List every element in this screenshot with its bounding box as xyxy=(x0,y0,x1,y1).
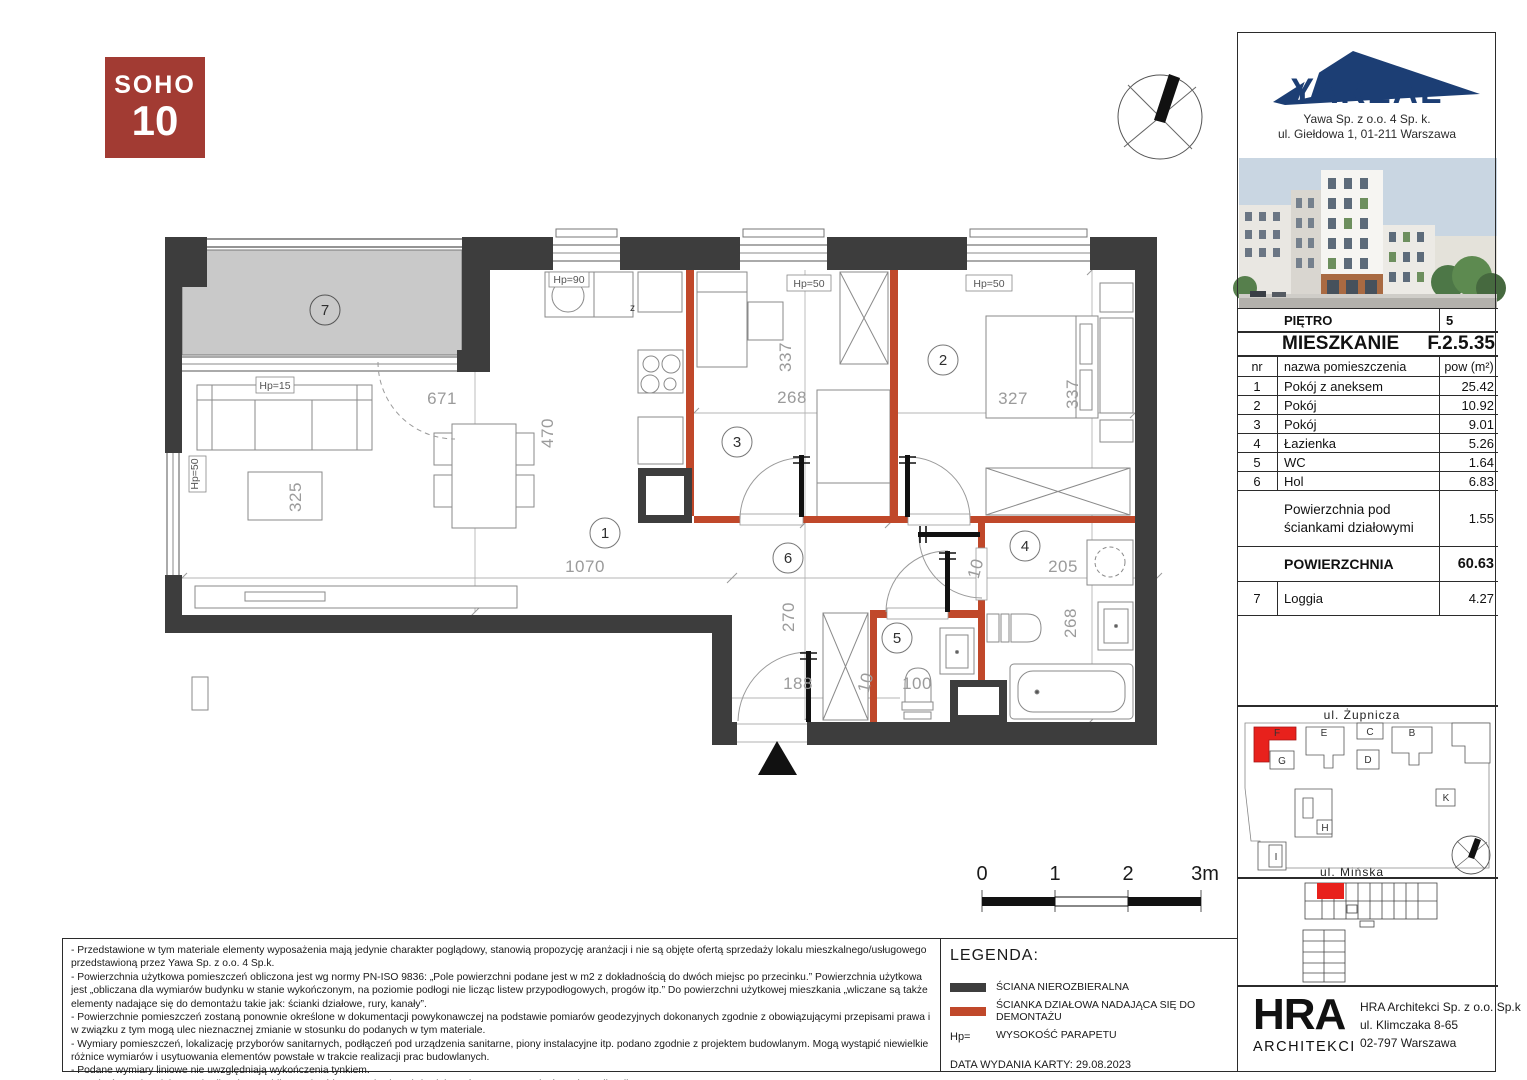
dim-327: 327 xyxy=(998,389,1028,408)
unit-number: F.2.5.35 xyxy=(1427,333,1498,355)
table-header-row: nr nazwa pomieszczenia pow (m²) xyxy=(1237,355,1498,376)
partition-area-row: Powierzchnia pod ściankami działowymi 1.… xyxy=(1237,490,1498,546)
partition-area-value: 1.55 xyxy=(1439,491,1498,546)
dim-325: 325 xyxy=(286,482,305,512)
developer-company: Yawa Sp. z o.o. 4 Sp. k. xyxy=(1243,112,1491,127)
table-row: 3 Pokój 9.01 xyxy=(1237,414,1498,433)
room-nr: 3 xyxy=(1237,415,1278,433)
hra-logo: HRA ARCHITEKCI xyxy=(1253,995,1356,1055)
scale-0: 0 xyxy=(976,863,987,885)
room-name: Loggia xyxy=(1278,591,1439,606)
room-nr: 5 xyxy=(1237,453,1278,471)
dim-205: 205 xyxy=(1048,557,1078,576)
yareal-wordmark: YAREAL xyxy=(1243,72,1491,112)
room3-bed2 xyxy=(817,390,890,517)
hp-label-50-room2: Hp=50 xyxy=(973,278,1004,290)
room-name: Pokój xyxy=(1278,398,1439,413)
left-window xyxy=(165,453,182,575)
hra-company: HRA Architekci Sp. z o.o. Sp.k xyxy=(1360,998,1521,1016)
dim-337-room3: 337 xyxy=(776,342,795,372)
table-row: 1 Pokój z aneksem 25.42 xyxy=(1237,376,1498,395)
outside-column xyxy=(192,677,208,710)
table-row: 4 Łazienka 5.26 xyxy=(1237,433,1498,452)
washing-machine xyxy=(1087,540,1133,585)
room-marker-4: 4 xyxy=(1010,531,1040,561)
scale-2: 2 xyxy=(1122,863,1133,885)
room-nr: 4 xyxy=(1237,434,1278,452)
dim-470: 470 xyxy=(538,418,557,448)
hall-wardrobe xyxy=(823,613,868,720)
room-area: 25.42 xyxy=(1439,377,1498,395)
dim-100: 100 xyxy=(902,674,932,693)
legend-item-hp: Hp= WYSOKOŚĆ PARAPETU xyxy=(950,1029,1227,1041)
kitchen-z-label: z xyxy=(630,303,635,314)
legend-item-partition: ŚCIANKA DZIAŁOWA NADAJĄCA SIĘ DO DEMONTA… xyxy=(950,999,1227,1023)
room-area: 6.83 xyxy=(1439,472,1498,490)
room-area: 1.64 xyxy=(1439,453,1498,471)
soho10-logo: SOHO 10 xyxy=(105,57,205,158)
table-row: 6 Hol 6.83 xyxy=(1237,471,1498,490)
soho-logo-text: SOHO xyxy=(114,73,196,98)
room-name: WC xyxy=(1278,455,1439,470)
legend-wall-label: ŚCIANA NIEROZBIERALNA xyxy=(996,981,1129,993)
divider xyxy=(1237,985,1498,987)
floor-label: PIĘTRO xyxy=(1278,313,1439,328)
disclaimer-line: - Wymiary pomieszczeń, lokalizację przyb… xyxy=(71,1038,932,1065)
soho-logo-number: 10 xyxy=(132,100,179,142)
room-area: 5.26 xyxy=(1439,434,1498,452)
loggia-row: 7 Loggia 4.27 xyxy=(1237,581,1498,616)
room3-wardrobe xyxy=(840,272,888,364)
bathroom-sink xyxy=(1098,602,1133,650)
room2-window xyxy=(967,229,1090,270)
unit-label: MIESZKANIE xyxy=(1237,333,1427,355)
hra-street: ul. Klimczaka 8-65 xyxy=(1360,1016,1521,1034)
disclaimer-line: - Powierzchnia użytkowa pomieszczeń obli… xyxy=(71,971,932,1011)
coffee-table xyxy=(248,472,322,520)
bathtub xyxy=(1010,664,1133,719)
developer-street: ul. Giełdowa 1, 01-211 Warszawa xyxy=(1243,127,1491,142)
divider xyxy=(1237,705,1498,707)
dim-268-bath: 268 xyxy=(1061,608,1080,638)
dim-188: 188 xyxy=(783,674,813,693)
room-number-2: 2 xyxy=(939,352,947,369)
room-nr: 7 xyxy=(1237,582,1278,615)
room-name: Pokój z aneksem xyxy=(1278,379,1439,394)
dim-270: 270 xyxy=(779,602,798,632)
room-number-5: 5 xyxy=(893,630,901,647)
hra-city: 02-797 Warszawa xyxy=(1360,1034,1521,1052)
total-area-row: POWIERZCHNIA 60.63 xyxy=(1237,546,1498,581)
developer-address: Yawa Sp. z o.o. 4 Sp. k. ul. Giełdowa 1,… xyxy=(1243,112,1491,142)
col-header-name: nazwa pomieszczenia xyxy=(1278,360,1439,374)
room-number-7: 7 xyxy=(321,302,329,319)
room-area: 9.01 xyxy=(1439,415,1498,433)
scale-3m: 3m xyxy=(1191,863,1219,885)
total-area-label: POWIERZCHNIA xyxy=(1278,556,1439,572)
total-area-value: 60.63 xyxy=(1439,547,1498,581)
hra-address: HRA Architekci Sp. z o.o. Sp.k ul. Klimc… xyxy=(1360,998,1521,1052)
hp-prefix: Hp= xyxy=(950,1031,986,1040)
room-marker-5: 5 xyxy=(882,623,912,653)
room-name: Łazienka xyxy=(1278,436,1439,451)
scale-1: 1 xyxy=(1049,863,1060,885)
disclaimer-line: - Podane wymiary liniowe nie uwzględniaj… xyxy=(71,1064,932,1077)
legend-box: LEGENDA: ŚCIANA NIEROZBIERALNA ŚCIANKA D… xyxy=(940,938,1238,1072)
hra-logo-subtext: ARCHITEKCI xyxy=(1253,1039,1356,1055)
room-number-1: 1 xyxy=(601,525,609,542)
kitchen-cabinet xyxy=(638,417,683,464)
table-row: 2 Pokój 10.92 xyxy=(1237,395,1498,414)
unit-table: PIĘTRO 5 MIESZKANIE F.2.5.35 nr nazwa po… xyxy=(1237,308,1498,616)
col-header-nr: nr xyxy=(1237,357,1278,376)
divider xyxy=(1237,877,1498,879)
kitchen-window xyxy=(553,229,620,270)
hp-label-90: Hp=90 xyxy=(553,274,584,286)
room3-desk xyxy=(748,302,783,340)
room-name: Hol xyxy=(1278,474,1439,489)
room-nr: 6 xyxy=(1237,472,1278,490)
room-number-6: 6 xyxy=(784,550,792,567)
unit-row: MIESZKANIE F.2.5.35 xyxy=(1237,331,1498,355)
dim-268-room3: 268 xyxy=(777,388,807,407)
scale-bar: 0 1 2 3m xyxy=(976,863,1218,912)
room-area: 4.27 xyxy=(1439,582,1498,615)
hp-label-15: Hp=15 xyxy=(259,380,290,392)
room2-wardrobe xyxy=(986,468,1130,515)
table-row: 5 WC 1.64 xyxy=(1237,452,1498,471)
bathroom-toilet xyxy=(987,614,1041,642)
dim-671: 671 xyxy=(427,389,457,408)
room-marker-6: 6 xyxy=(773,543,803,573)
room-nr: 1 xyxy=(1237,377,1278,395)
room-number-3: 3 xyxy=(733,434,741,451)
disclaimer-line: - Powierzchnie pomieszczeń zostaną ponow… xyxy=(71,1011,932,1038)
room-number-4: 4 xyxy=(1021,538,1029,555)
partition-swatch-icon xyxy=(950,1007,986,1016)
issue-date: DATA WYDANIA KARTY: 29.08.2023 xyxy=(950,1059,1227,1071)
floor-row: PIĘTRO 5 xyxy=(1237,308,1498,331)
room3-window xyxy=(740,229,827,270)
room-nr: 2 xyxy=(1237,396,1278,414)
apartment-card-page: Hp=15 Hp=50 Hp=90 Hp=50 Hp=50 671 470 10… xyxy=(0,0,1527,1080)
room-name: Pokój xyxy=(1278,417,1439,432)
wall-swatch-icon xyxy=(950,983,986,992)
legend-hp-label: WYSOKOŚĆ PARAPETU xyxy=(996,1029,1117,1041)
sofa xyxy=(197,385,372,450)
wc-sink xyxy=(940,628,974,674)
floor-value: 5 xyxy=(1439,309,1498,331)
room-area: 10.92 xyxy=(1439,396,1498,414)
room-marker-1: 1 xyxy=(590,518,620,548)
hp-label-50-left: Hp=50 xyxy=(189,458,201,489)
tv-sideboard xyxy=(195,586,517,608)
room3-bed xyxy=(697,272,747,367)
hp-label-50-room3: Hp=50 xyxy=(793,278,824,290)
room-marker-2: 2 xyxy=(928,345,958,375)
kitchen-stove xyxy=(638,350,683,393)
room-marker-3: 3 xyxy=(722,427,752,457)
kitchen-fridge xyxy=(638,272,682,312)
disclaimer-box: - Przedstawione w tym materiale elementy… xyxy=(62,938,941,1072)
partition-area-label: Powierzchnia pod ściankami działowymi xyxy=(1278,501,1439,536)
dim-337-room2: 337 xyxy=(1063,379,1082,409)
dining-table-set xyxy=(434,424,534,528)
legend-item-wall: ŚCIANA NIEROZBIERALNA xyxy=(950,981,1227,993)
dim-1070: 1070 xyxy=(565,557,605,576)
north-compass-icon xyxy=(1118,74,1202,159)
hra-logo-text: HRA xyxy=(1253,995,1356,1035)
disclaimer-line: - Przedstawione w tym materiale elementy… xyxy=(71,944,932,971)
room2-nightstands xyxy=(1100,283,1133,442)
col-header-area: pow (m²) xyxy=(1439,357,1498,376)
legend-title: LEGENDA: xyxy=(950,947,1227,965)
legend-partition-label: ŚCIANKA DZIAŁOWA NADAJĄCA SIĘ DO DEMONTA… xyxy=(996,999,1227,1023)
